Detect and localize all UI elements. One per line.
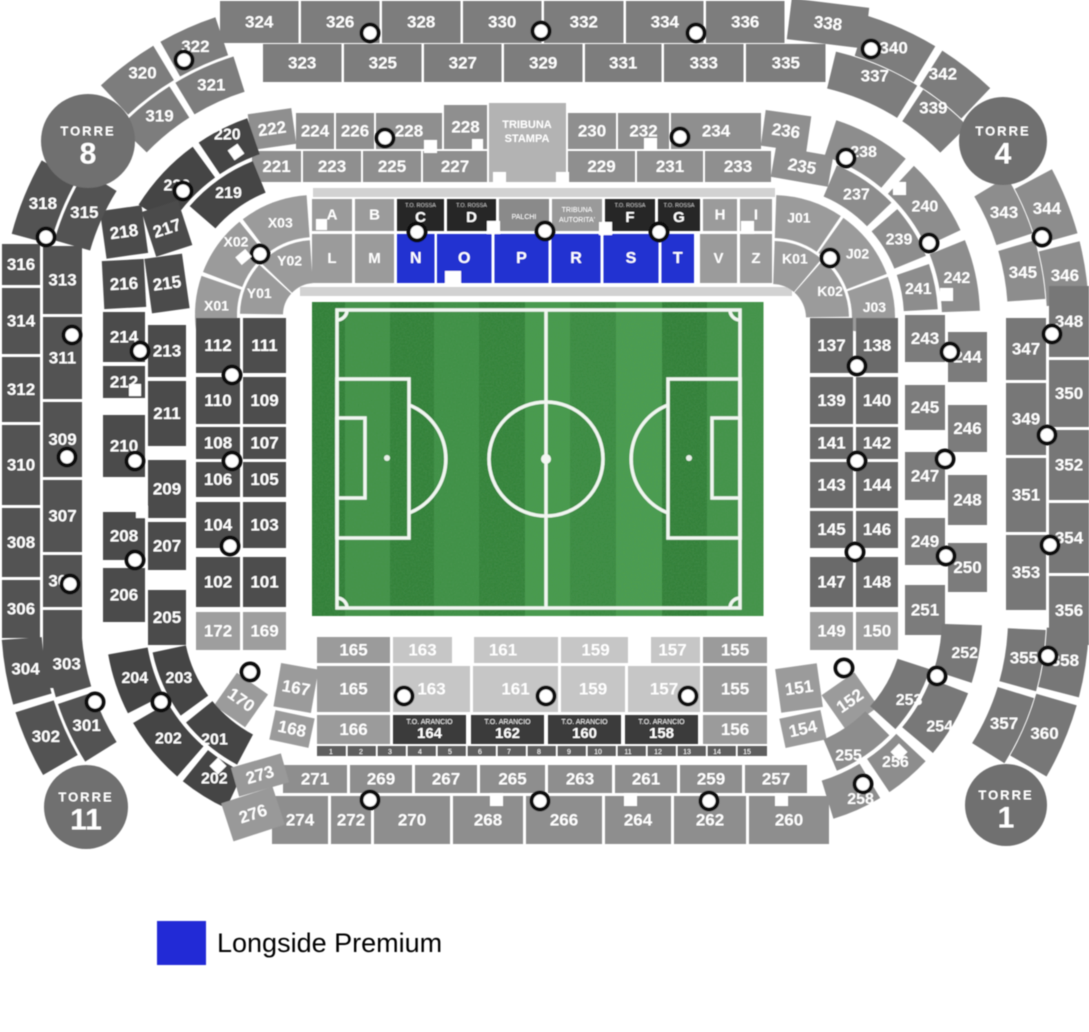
svg-text:202: 202: [201, 771, 228, 788]
svg-text:345: 345: [1009, 263, 1037, 282]
svg-text:265: 265: [498, 770, 526, 789]
svg-text:230: 230: [578, 122, 606, 141]
svg-text:201: 201: [201, 731, 228, 748]
svg-text:J03: J03: [863, 299, 887, 315]
svg-text:160: 160: [572, 725, 597, 742]
svg-text:323: 323: [288, 54, 316, 73]
svg-text:101: 101: [250, 573, 278, 592]
svg-text:324: 324: [245, 13, 274, 32]
svg-text:233: 233: [724, 157, 752, 176]
svg-text:X03: X03: [268, 214, 293, 230]
svg-text:253: 253: [896, 692, 923, 709]
svg-text:150: 150: [863, 622, 891, 641]
svg-text:355: 355: [1010, 648, 1038, 667]
svg-text:220: 220: [214, 127, 241, 144]
svg-text:263: 263: [566, 770, 594, 789]
svg-text:262: 262: [696, 811, 724, 830]
svg-text:N: N: [410, 250, 422, 267]
svg-text:307: 307: [48, 507, 76, 526]
svg-text:157: 157: [658, 641, 686, 660]
svg-text:A: A: [327, 207, 338, 224]
svg-text:151: 151: [784, 677, 815, 700]
svg-text:254: 254: [926, 718, 953, 735]
svg-text:AUTORITA': AUTORITA': [559, 217, 595, 224]
svg-text:248: 248: [953, 491, 981, 510]
svg-text:213: 213: [153, 342, 181, 361]
svg-text:215: 215: [152, 272, 183, 295]
svg-text:340: 340: [879, 39, 907, 58]
svg-text:272: 272: [337, 811, 365, 830]
svg-text:209: 209: [153, 480, 181, 499]
svg-text:360: 360: [1030, 724, 1058, 743]
svg-text:269: 269: [367, 770, 395, 789]
svg-text:342: 342: [929, 64, 957, 83]
svg-text:2: 2: [359, 749, 363, 756]
svg-text:159: 159: [579, 680, 607, 699]
svg-text:STAMPA: STAMPA: [505, 133, 550, 145]
svg-text:344: 344: [1033, 199, 1062, 218]
svg-text:255: 255: [835, 748, 862, 765]
svg-text:L: L: [327, 250, 336, 267]
svg-text:241: 241: [905, 281, 932, 298]
svg-text:165: 165: [339, 680, 367, 699]
svg-text:Y02: Y02: [277, 253, 302, 269]
svg-text:251: 251: [911, 601, 939, 620]
svg-text:226: 226: [341, 122, 369, 141]
svg-text:142: 142: [863, 434, 891, 453]
svg-text:J01: J01: [787, 210, 811, 226]
svg-text:4: 4: [995, 138, 1012, 171]
svg-text:147: 147: [817, 573, 845, 592]
svg-text:228: 228: [451, 118, 479, 137]
svg-text:302: 302: [32, 727, 60, 746]
svg-text:309: 309: [48, 430, 76, 449]
svg-text:J02: J02: [846, 246, 870, 262]
svg-text:250: 250: [953, 558, 981, 577]
svg-text:G: G: [673, 209, 685, 226]
svg-text:331: 331: [609, 54, 637, 73]
svg-text:5: 5: [448, 749, 452, 756]
svg-text:326: 326: [326, 13, 354, 32]
svg-text:Y01: Y01: [247, 285, 272, 301]
svg-text:257: 257: [762, 770, 790, 789]
svg-text:225: 225: [378, 157, 406, 176]
svg-text:163: 163: [417, 680, 445, 699]
svg-text:X01: X01: [204, 298, 229, 314]
svg-text:169: 169: [250, 622, 278, 641]
svg-text:303: 303: [53, 655, 81, 674]
svg-text:320: 320: [128, 64, 156, 83]
svg-text:145: 145: [817, 520, 845, 539]
svg-text:205: 205: [153, 608, 181, 627]
svg-text:240: 240: [912, 198, 939, 215]
svg-text:301: 301: [72, 716, 100, 735]
svg-text:308: 308: [7, 533, 35, 552]
svg-text:V: V: [713, 250, 723, 267]
svg-text:247: 247: [911, 467, 939, 486]
svg-text:Z: Z: [751, 250, 760, 267]
svg-text:F: F: [625, 209, 634, 226]
svg-text:15: 15: [743, 749, 751, 756]
svg-text:157: 157: [650, 680, 678, 699]
svg-text:270: 270: [398, 811, 426, 830]
svg-text:139: 139: [817, 391, 845, 410]
svg-text:106: 106: [204, 470, 232, 489]
svg-text:311: 311: [49, 349, 76, 368]
svg-text:K02: K02: [817, 283, 843, 299]
svg-text:330: 330: [488, 13, 516, 32]
svg-text:K01: K01: [782, 250, 808, 266]
svg-text:3: 3: [388, 749, 392, 756]
svg-text:271: 271: [301, 770, 329, 789]
svg-text:231: 231: [656, 157, 684, 176]
svg-text:207: 207: [153, 537, 181, 556]
svg-text:155: 155: [721, 641, 749, 660]
svg-text:346: 346: [1051, 266, 1079, 285]
svg-text:I: I: [754, 207, 758, 224]
svg-text:105: 105: [250, 470, 278, 489]
svg-text:318: 318: [29, 194, 57, 213]
svg-text:304: 304: [11, 660, 40, 679]
svg-text:6: 6: [478, 749, 482, 756]
svg-text:339: 339: [919, 98, 947, 117]
svg-text:155: 155: [721, 680, 749, 699]
svg-text:229: 229: [587, 157, 615, 176]
svg-text:162: 162: [495, 725, 520, 742]
svg-text:243: 243: [911, 329, 939, 348]
svg-text:249: 249: [911, 532, 939, 551]
svg-text:S: S: [626, 250, 637, 267]
svg-text:109: 109: [250, 391, 278, 410]
svg-text:242: 242: [944, 270, 971, 287]
svg-text:218: 218: [109, 221, 140, 244]
svg-text:219: 219: [215, 185, 242, 202]
svg-text:310: 310: [7, 456, 35, 475]
svg-text:350: 350: [1055, 384, 1083, 403]
svg-text:224: 224: [301, 122, 330, 141]
svg-text:315: 315: [70, 203, 98, 222]
svg-text:204: 204: [121, 670, 148, 687]
svg-text:103: 103: [250, 516, 278, 535]
svg-text:146: 146: [863, 520, 891, 539]
svg-text:237: 237: [843, 187, 870, 204]
svg-text:112: 112: [204, 336, 231, 355]
svg-text:10: 10: [594, 749, 602, 756]
svg-text:107: 107: [250, 434, 278, 453]
svg-text:328: 328: [407, 13, 435, 32]
svg-text:327: 327: [449, 54, 477, 73]
svg-text:8: 8: [80, 138, 97, 171]
svg-text:164: 164: [417, 725, 443, 742]
svg-text:TRIBUNA: TRIBUNA: [502, 119, 552, 131]
svg-text:B: B: [369, 207, 380, 224]
svg-text:336: 336: [731, 13, 759, 32]
svg-text:108: 108: [204, 434, 232, 453]
svg-text:140: 140: [863, 391, 891, 410]
svg-text:111: 111: [251, 336, 278, 355]
svg-text:306: 306: [7, 600, 35, 619]
svg-text:329: 329: [529, 54, 557, 73]
svg-text:259: 259: [697, 770, 725, 789]
svg-text:159: 159: [581, 641, 609, 660]
svg-text:PALCHI: PALCHI: [512, 214, 537, 221]
svg-text:332: 332: [570, 13, 598, 32]
svg-text:104: 104: [204, 516, 233, 535]
svg-text:144: 144: [863, 476, 892, 495]
svg-text:148: 148: [863, 573, 891, 592]
svg-text:8: 8: [537, 749, 541, 756]
svg-text:221: 221: [262, 157, 290, 176]
svg-text:D: D: [466, 209, 477, 226]
svg-text:338: 338: [813, 12, 843, 34]
svg-text:211: 211: [153, 404, 180, 423]
svg-text:357: 357: [990, 714, 1018, 733]
svg-text:1: 1: [998, 802, 1015, 835]
svg-text:102: 102: [204, 573, 232, 592]
svg-text:158: 158: [649, 725, 674, 742]
svg-text:H: H: [715, 207, 726, 224]
svg-text:313: 313: [48, 271, 76, 290]
svg-text:TRIBUNA: TRIBUNA: [562, 207, 593, 214]
svg-text:208: 208: [110, 527, 138, 546]
svg-text:337: 337: [861, 66, 889, 85]
svg-text:227: 227: [441, 157, 469, 176]
svg-text:11: 11: [70, 804, 102, 837]
svg-text:353: 353: [1012, 563, 1040, 582]
svg-text:334: 334: [651, 13, 680, 32]
svg-text:202: 202: [155, 730, 182, 747]
svg-text:14: 14: [713, 749, 721, 756]
svg-text:267: 267: [432, 770, 460, 789]
svg-text:M: M: [368, 250, 381, 267]
svg-text:312: 312: [7, 380, 35, 399]
svg-text:4: 4: [418, 749, 422, 756]
svg-text:O: O: [458, 250, 470, 267]
svg-text:333: 333: [690, 54, 718, 73]
svg-text:228: 228: [395, 122, 423, 141]
svg-text:325: 325: [369, 54, 397, 73]
svg-text:206: 206: [110, 586, 138, 605]
svg-text:321: 321: [197, 75, 225, 94]
svg-text:264: 264: [624, 811, 653, 830]
svg-text:161: 161: [501, 680, 529, 699]
svg-text:110: 110: [204, 391, 231, 410]
svg-text:319: 319: [145, 107, 173, 126]
svg-text:TORRE: TORRE: [58, 790, 113, 805]
svg-text:P: P: [516, 250, 527, 267]
svg-text:314: 314: [7, 312, 36, 331]
svg-text:236: 236: [771, 120, 802, 143]
svg-text:216: 216: [109, 274, 138, 294]
svg-text:156: 156: [721, 720, 749, 739]
svg-text:1: 1: [329, 749, 333, 756]
svg-text:316: 316: [7, 255, 35, 274]
svg-text:268: 268: [474, 811, 502, 830]
svg-text:222: 222: [257, 118, 288, 141]
svg-text:245: 245: [911, 398, 939, 417]
svg-text:9: 9: [567, 749, 571, 756]
svg-text:X02: X02: [224, 233, 249, 249]
svg-text:203: 203: [166, 670, 193, 687]
svg-text:261: 261: [632, 770, 660, 789]
svg-text:13: 13: [683, 749, 691, 756]
svg-text:166: 166: [339, 720, 367, 739]
svg-text:137: 137: [817, 336, 845, 355]
svg-text:11: 11: [624, 749, 631, 756]
svg-text:260: 260: [775, 811, 803, 830]
svg-text:232: 232: [629, 122, 657, 141]
svg-text:223: 223: [318, 157, 346, 176]
svg-text:239: 239: [886, 232, 913, 249]
svg-text:R: R: [570, 250, 582, 267]
svg-text:T: T: [673, 250, 683, 267]
svg-text:266: 266: [550, 811, 578, 830]
svg-text:343: 343: [990, 203, 1018, 222]
svg-text:351: 351: [1012, 486, 1040, 505]
svg-text:143: 143: [817, 476, 845, 495]
svg-text:7: 7: [507, 749, 511, 756]
svg-text:172: 172: [204, 622, 232, 641]
svg-text:274: 274: [286, 811, 315, 830]
svg-text:149: 149: [817, 622, 845, 641]
svg-text:234: 234: [702, 122, 731, 141]
svg-text:347: 347: [1012, 340, 1040, 359]
svg-text:335: 335: [772, 54, 800, 73]
svg-text:TORRE: TORRE: [975, 124, 1030, 139]
svg-text:165: 165: [339, 641, 367, 660]
svg-text:246: 246: [953, 419, 981, 438]
svg-text:12: 12: [654, 749, 662, 756]
svg-text:356: 356: [1055, 601, 1083, 620]
svg-text:349: 349: [1012, 410, 1040, 429]
svg-text:TORRE: TORRE: [978, 788, 1033, 803]
svg-text:163: 163: [408, 641, 436, 660]
svg-text:252: 252: [951, 645, 978, 662]
svg-text:Longside Premium: Longside Premium: [217, 928, 442, 958]
svg-text:138: 138: [863, 336, 891, 355]
svg-text:352: 352: [1055, 456, 1083, 475]
svg-text:161: 161: [489, 641, 517, 660]
svg-text:TORRE: TORRE: [60, 124, 115, 139]
svg-text:141: 141: [817, 434, 845, 453]
